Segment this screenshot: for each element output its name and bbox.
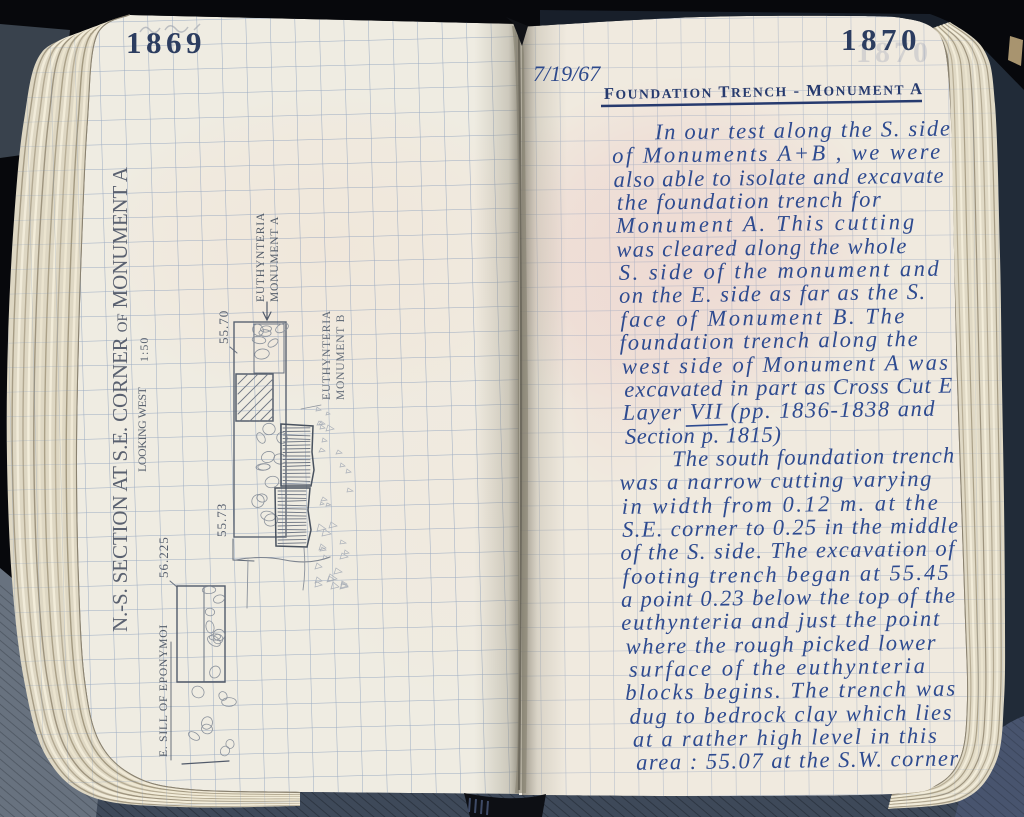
svg-text:area : 55.07 at the S.W. corne: area : 55.07 at the S.W. corner [636, 745, 959, 774]
svg-text:1870: 1870 [841, 22, 921, 57]
svg-text:MONUMENT A: MONUMENT A [269, 216, 281, 302]
svg-text:LOOKING WEST: LOOKING WEST [135, 386, 149, 472]
svg-text:MONUMENT B: MONUMENT B [335, 314, 347, 400]
svg-text:EUTHYNTERIA: EUTHYNTERIA [321, 310, 333, 400]
svg-text:55.73: 55.73 [214, 503, 229, 537]
svg-text:1:50: 1:50 [137, 337, 151, 362]
svg-text:E. SILL OF EPONYMOI: E. SILL OF EPONYMOI [158, 624, 170, 757]
svg-text:N.-S. SECTION AT S.E. CORNER O: N.-S. SECTION AT S.E. CORNER OF MONUMENT… [108, 166, 132, 632]
svg-text:56.225: 56.225 [156, 536, 171, 578]
svg-text:7/19/67: 7/19/67 [533, 61, 601, 86]
svg-text:on the E. side as far as the S: on the E. side as far as the S. [619, 279, 925, 308]
svg-text:1869: 1869 [126, 25, 206, 60]
svg-text:55.70: 55.70 [216, 310, 231, 344]
svg-text:EUTHYNTERIA: EUTHYNTERIA [255, 212, 267, 302]
